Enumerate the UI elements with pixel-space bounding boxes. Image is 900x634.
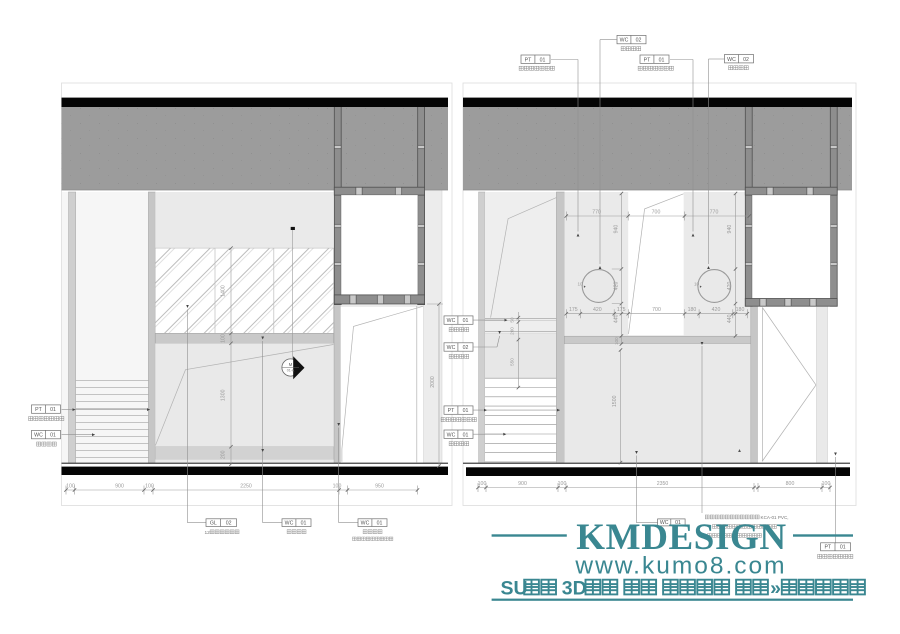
svg-text:01: 01 [50, 433, 56, 439]
svg-text:PT: PT [448, 408, 455, 414]
svg-text:2350: 2350 [657, 481, 669, 487]
svg-text:2000: 2000 [430, 376, 436, 388]
svg-text:3D: 3D [562, 578, 587, 600]
svg-text:WC: WC [34, 433, 43, 439]
svg-text:01: 01 [463, 318, 469, 324]
svg-text:PT: PT [35, 407, 42, 413]
svg-text:WC: WC [285, 520, 294, 526]
svg-text:1500: 1500 [612, 395, 618, 407]
svg-text:420: 420 [727, 281, 733, 290]
svg-text:420: 420 [593, 307, 602, 313]
svg-text:950: 950 [375, 483, 384, 489]
svg-text:WC: WC [447, 432, 456, 438]
svg-text:GL: GL [210, 520, 217, 526]
svg-text:»: » [770, 578, 781, 600]
svg-text:175: 175 [569, 307, 578, 313]
svg-text:550: 550 [510, 358, 515, 366]
svg-text:PT: PT [824, 545, 831, 551]
svg-text:700: 700 [652, 307, 661, 313]
svg-text:02: 02 [636, 38, 642, 44]
svg-text:01: 01 [377, 520, 383, 526]
svg-text:2250: 2250 [240, 483, 252, 489]
svg-text:12: 12 [205, 530, 211, 536]
svg-text:940: 940 [727, 225, 733, 234]
svg-text:100: 100 [333, 483, 342, 489]
svg-text:WC: WC [447, 345, 456, 351]
svg-text:02: 02 [463, 345, 469, 351]
svg-text:200: 200 [221, 450, 227, 459]
svg-text:100: 100 [145, 483, 154, 489]
svg-text:01: 01 [463, 432, 469, 438]
svg-text:180: 180 [688, 307, 697, 313]
svg-text:WC: WC [361, 520, 370, 526]
svg-text:940: 940 [613, 225, 619, 234]
svg-text:100: 100 [221, 334, 227, 343]
svg-text:440: 440 [613, 314, 619, 323]
svg-text:01-A: 01-A [287, 369, 295, 373]
svg-text:WC: WC [727, 57, 736, 63]
svg-text:01: 01 [540, 57, 546, 63]
svg-text:800: 800 [786, 481, 795, 487]
svg-text:10: 10 [694, 282, 700, 287]
svg-text:10: 10 [577, 282, 583, 287]
svg-text:900: 900 [115, 483, 124, 489]
svg-text:WC: WC [620, 38, 629, 44]
svg-text:200: 200 [510, 327, 515, 335]
svg-text:700: 700 [652, 210, 661, 216]
svg-text:100: 100 [558, 481, 567, 487]
svg-text:100: 100 [822, 481, 831, 487]
svg-text:01: 01 [840, 545, 846, 551]
svg-text:01: 01 [301, 520, 307, 526]
svg-text:420: 420 [712, 307, 721, 313]
svg-text:420: 420 [613, 281, 619, 290]
svg-text:900: 900 [518, 481, 527, 487]
svg-text:100: 100 [614, 337, 619, 345]
svg-text:WC: WC [447, 318, 456, 324]
svg-text:1400: 1400 [221, 285, 227, 297]
svg-text:PT: PT [525, 57, 532, 63]
svg-text:M: M [289, 362, 293, 367]
svg-text:01: 01 [659, 57, 665, 63]
svg-text:02: 02 [743, 57, 749, 63]
svg-text:01: 01 [463, 408, 469, 414]
svg-text:100: 100 [478, 481, 487, 487]
svg-text:01: 01 [50, 407, 56, 413]
svg-text:770: 770 [710, 210, 719, 216]
svg-text:PT: PT [644, 57, 651, 63]
svg-text:440: 440 [727, 314, 733, 323]
svg-text:50: 50 [510, 317, 515, 323]
svg-text:02: 02 [226, 520, 232, 526]
svg-text:1300: 1300 [221, 389, 227, 401]
svg-text:100: 100 [66, 483, 75, 489]
svg-text:www.kumo8.com: www.kumo8.com [574, 553, 786, 580]
